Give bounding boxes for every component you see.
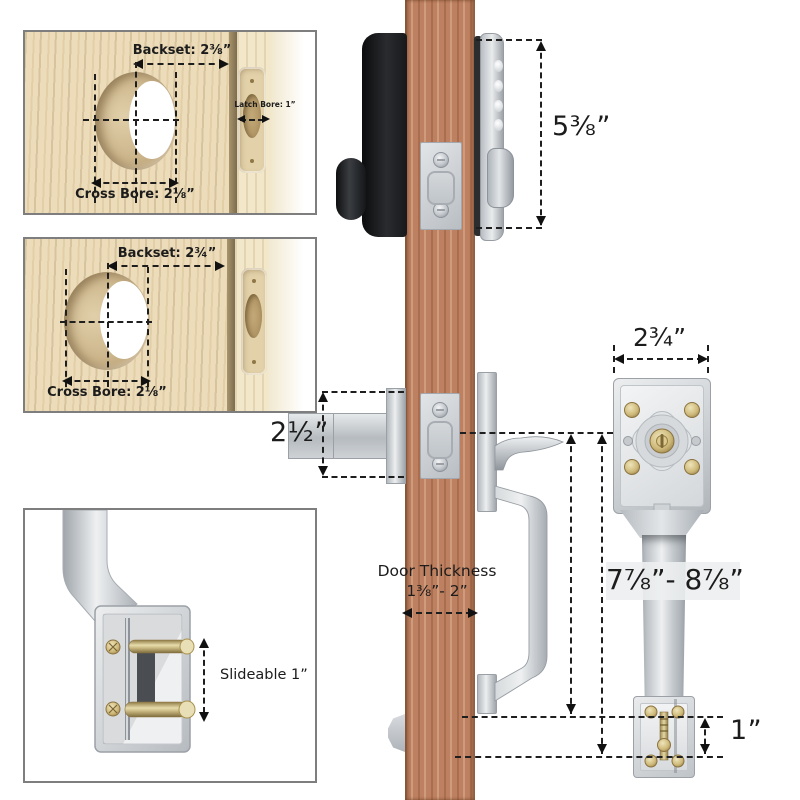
dim-line	[83, 119, 179, 121]
dim-line	[203, 641, 205, 713]
plate-width-label: 2¾”	[633, 324, 686, 352]
handle-height-label: 7⅞”- 8⅞”	[606, 565, 740, 596]
wood-edge-shadow	[229, 32, 237, 213]
deadbolt-strike-plate-top	[420, 142, 462, 230]
handle-bar	[641, 535, 687, 700]
arrow-up-icon	[318, 392, 328, 402]
arrow-left-icon	[614, 354, 624, 364]
arrow-up-icon	[597, 434, 607, 444]
arrow-right-icon	[262, 115, 270, 123]
strike-adjust-label: 1”	[730, 716, 762, 746]
arrow-down-icon	[318, 466, 328, 476]
dim-line	[322, 476, 404, 478]
lock-height-label: 5⅜”	[552, 112, 611, 142]
lockset-dimension-diagram: 5⅜” 2½” Door Thickness 1⅜”- 2”	[0, 0, 800, 800]
dim-line	[322, 391, 404, 393]
dim-line	[460, 432, 613, 434]
dim-line	[476, 39, 542, 41]
dim-line	[617, 358, 703, 360]
arrow-right-icon	[219, 59, 229, 69]
handle-bar-transition	[620, 510, 704, 538]
backset-label: Backset: 2¾”	[107, 247, 227, 261]
arrow-right-icon	[468, 608, 478, 618]
arrow-right-icon	[215, 261, 225, 271]
dim-line	[476, 227, 542, 229]
latch-pocket	[241, 268, 267, 375]
keypad-button-icon	[494, 100, 503, 112]
keypad-button-icon	[494, 80, 503, 92]
bore-diagram-top: Backset: 2⅜” Cross Bore: 2⅛” Latch Bore:…	[23, 30, 317, 215]
deadbolt-strike-plate-mid	[420, 393, 460, 479]
dim-line	[137, 63, 225, 65]
wood-edge-shadow	[227, 239, 235, 411]
arrow-down-icon	[700, 744, 710, 754]
handle-back-illustration	[25, 510, 315, 781]
arrow-left-icon	[237, 115, 245, 123]
dim-line	[111, 265, 221, 267]
slideable-label: Slideable 1”	[220, 668, 308, 684]
dim-line	[462, 716, 723, 718]
deadbolt-face	[427, 421, 453, 459]
key-cylinder	[487, 148, 514, 208]
dim-line	[65, 380, 147, 382]
latch-bolt-seam	[333, 414, 334, 458]
latch-bore-label: Latch Bore: 1”	[230, 101, 300, 109]
arrow-up-icon	[700, 718, 710, 728]
arrow-down-icon	[199, 712, 209, 722]
pilot-hole-icon	[250, 79, 254, 83]
pilot-hole-icon	[252, 360, 256, 364]
handle-detail-diagram	[23, 508, 317, 783]
screw-icon	[432, 402, 448, 418]
latch-pocket-hole	[245, 294, 262, 338]
door-thickness-range: 1⅜”- 2”	[377, 583, 497, 600]
pilot-hole-icon	[250, 159, 254, 163]
arrow-left-icon	[402, 608, 412, 618]
bottom-plate-hardware	[633, 696, 693, 776]
dim-line	[107, 263, 109, 387]
thumb-lever	[474, 428, 574, 480]
background-fade	[271, 32, 315, 213]
arrow-right-icon	[698, 354, 708, 364]
door-thickness-title: Door Thickness	[377, 563, 497, 580]
thumbturn-knob	[336, 158, 366, 220]
arrow-up-icon	[536, 41, 546, 51]
pilot-hole-icon	[252, 279, 256, 283]
dim-line	[540, 43, 542, 225]
cross-bore-label: Cross Bore: 2⅛”	[47, 386, 167, 400]
keypad-button-icon	[494, 119, 503, 131]
dim-line	[60, 321, 152, 323]
dim-line	[570, 436, 572, 714]
arrow-up-icon	[566, 434, 576, 444]
keypad-button-icon	[494, 60, 503, 72]
dim-line	[455, 756, 723, 758]
dim-line	[601, 436, 603, 754]
cross-bore-label: Cross Bore: 2⅛”	[75, 188, 195, 202]
interior-lock-unit	[362, 33, 407, 237]
door-edge-knob	[388, 714, 405, 752]
latch-backplate	[386, 388, 406, 484]
arrow-down-icon	[566, 704, 576, 714]
dim-line	[406, 612, 472, 614]
background-fade	[268, 239, 315, 411]
dim-line	[65, 269, 67, 387]
arrow-down-icon	[536, 216, 546, 226]
bore-diagram-mid: Backset: 2¾” Cross Bore: 2⅛”	[23, 237, 317, 413]
dim-line	[147, 267, 149, 387]
latch-length-label: 2½”	[270, 418, 329, 448]
arrow-down-icon	[597, 744, 607, 754]
deadbolt-face	[427, 171, 455, 205]
backset-label: Backset: 2⅜”	[122, 44, 242, 58]
screw-icon	[433, 152, 449, 168]
arrow-up-icon	[199, 638, 209, 648]
escutcheon-mechanism	[613, 378, 709, 512]
dim-line	[94, 182, 175, 184]
